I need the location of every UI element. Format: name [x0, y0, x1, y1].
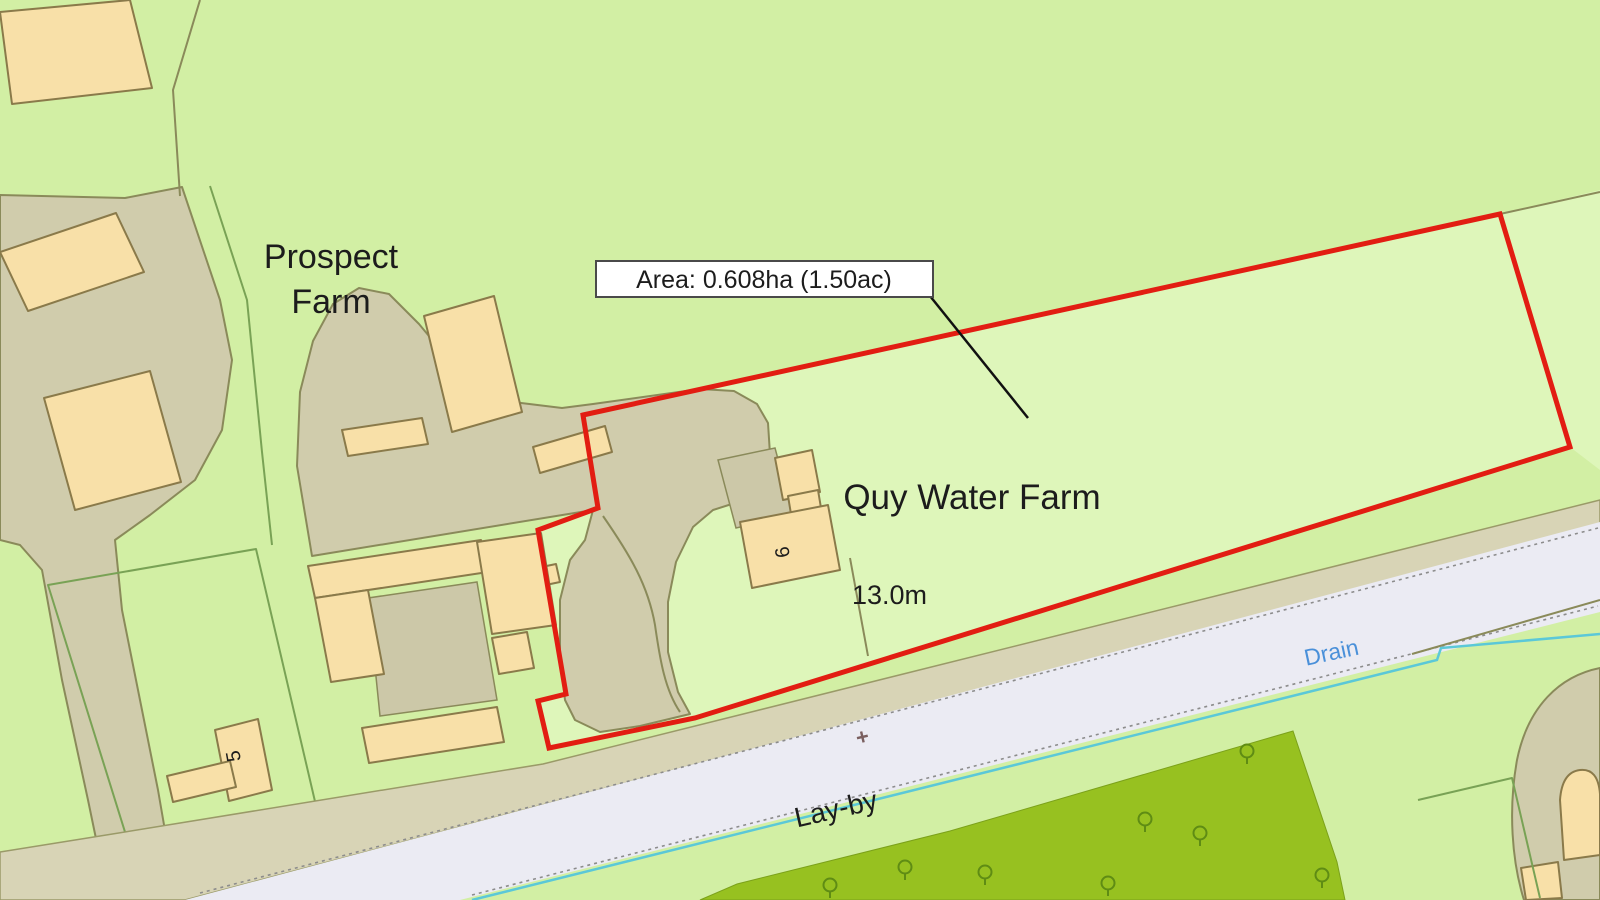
prospect-farm-label-line2: Farm: [291, 283, 370, 321]
building-bottom-right-small: [1521, 862, 1562, 900]
map-canvas: + Area: 0.608ha (1.50ac) Prospect Farm Q…: [0, 0, 1600, 900]
building-bottom-right-barn: [1560, 770, 1600, 860]
prospect-farm-label-line1: Prospect: [264, 238, 399, 276]
courtyard: [368, 582, 497, 716]
dimension-label: 13.0m: [852, 580, 927, 610]
site-plan-map: + Area: 0.608ha (1.50ac) Prospect Farm Q…: [0, 0, 1600, 900]
building-east-range: [477, 533, 556, 634]
building-topleft-large: [0, 0, 152, 104]
quy-water-farm-label: Quy Water Farm: [843, 478, 1100, 517]
area-label-text: Area: 0.608ha (1.50ac): [636, 266, 892, 294]
building-east-low: [492, 632, 534, 674]
